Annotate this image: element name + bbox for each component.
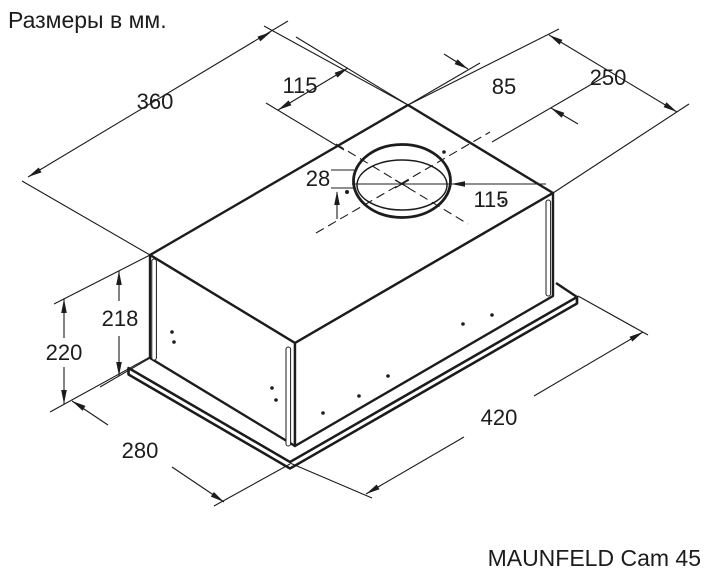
seam-front-right xyxy=(546,200,551,296)
dim-label-360: 360 xyxy=(137,89,174,114)
dim-label-218: 218 xyxy=(102,306,139,331)
dim-label-85: 85 xyxy=(492,74,516,99)
drawing-canvas: 360 115 85 250 xyxy=(0,0,707,578)
seam-front-left xyxy=(286,347,291,446)
dim-label-220: 220 xyxy=(46,340,83,365)
units-note: Размеры в мм. xyxy=(8,7,167,33)
dim-body-height: 218 xyxy=(54,255,150,387)
dim-label-250: 250 xyxy=(590,65,627,90)
product-caption: MAUNFELD Cam 45 xyxy=(488,545,701,571)
dim-label-280: 280 xyxy=(122,438,159,463)
dim-label-115-diameter: 115 xyxy=(473,187,508,212)
dim-label-420: 420 xyxy=(481,405,518,430)
vent-collar-outer xyxy=(354,145,451,218)
base-plate-right-stub xyxy=(556,283,577,297)
technical-drawing-page: 360 115 85 250 xyxy=(0,0,707,578)
dim-label-28: 28 xyxy=(306,166,330,191)
seam-left xyxy=(152,259,157,360)
dim-label-115-top: 115 xyxy=(282,73,317,98)
